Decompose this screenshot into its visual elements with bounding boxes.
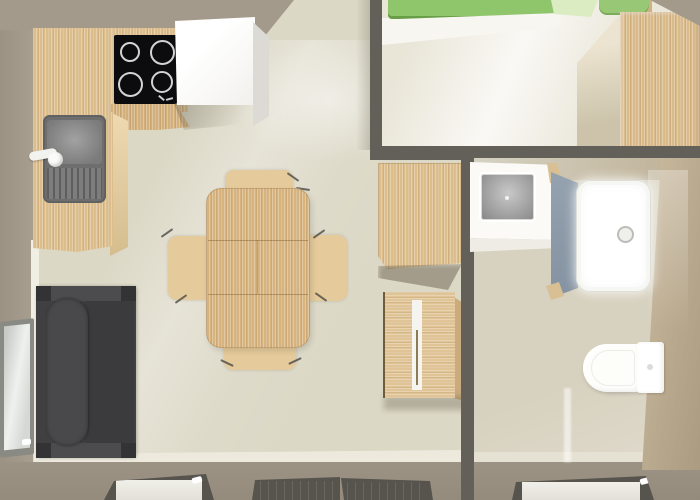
left-window — [0, 318, 34, 458]
sideboard-slot-line — [416, 330, 418, 385]
shower-drain — [617, 226, 634, 243]
kitchen-counter-back — [33, 28, 118, 112]
wardrobe — [620, 12, 700, 154]
table-seam — [208, 294, 308, 295]
floorplan-canvas — [0, 0, 700, 500]
faucet-knob — [48, 152, 63, 167]
window-glass — [4, 324, 30, 451]
tall-cabinet — [378, 163, 463, 269]
window-handle — [22, 439, 31, 446]
sofa-corner — [36, 443, 51, 458]
fridge-cabinet-side-face — [253, 22, 269, 126]
sofa-corner — [121, 286, 136, 301]
table-seam — [257, 240, 258, 294]
shower-partition-panel — [551, 170, 578, 298]
door-glass — [260, 481, 334, 500]
cooktop-control-mark — [158, 95, 165, 101]
burner-icon — [150, 40, 175, 65]
door-glass — [347, 482, 425, 500]
cooktop — [114, 35, 177, 104]
sofa-corner — [36, 286, 51, 301]
shower-tray — [576, 180, 651, 292]
table-seam — [208, 240, 308, 241]
bedroom-partition-wall — [370, 0, 382, 154]
washbasin-drain — [505, 196, 509, 200]
door-glass — [522, 482, 640, 500]
sideboard-shadow — [384, 396, 468, 410]
fridge-cabinet — [175, 17, 255, 105]
burner-icon — [151, 71, 173, 93]
dining-table — [206, 188, 310, 348]
burner-icon — [120, 42, 140, 62]
burner-icon — [118, 72, 143, 97]
toilet-flush-button — [647, 364, 653, 370]
door-glass — [116, 480, 202, 500]
toilet-bowl — [583, 344, 643, 392]
sofa-seat — [85, 301, 134, 443]
sofa — [36, 286, 136, 458]
bathroom-right-wall-highlight — [648, 170, 688, 460]
sideboard — [383, 292, 455, 398]
toilet-tank — [637, 342, 664, 393]
bedroom-wall-floor-shadow — [356, 0, 370, 150]
bedroom-bathroom-wall — [370, 146, 700, 160]
bathroom-floor-light-streak — [564, 388, 571, 462]
sink-drainboard — [47, 168, 102, 199]
sofa-corner — [121, 443, 136, 458]
toilet-seat-line — [591, 350, 635, 386]
sofa-backrest-cushion — [46, 298, 88, 446]
cooktop-control-mark — [166, 97, 173, 101]
